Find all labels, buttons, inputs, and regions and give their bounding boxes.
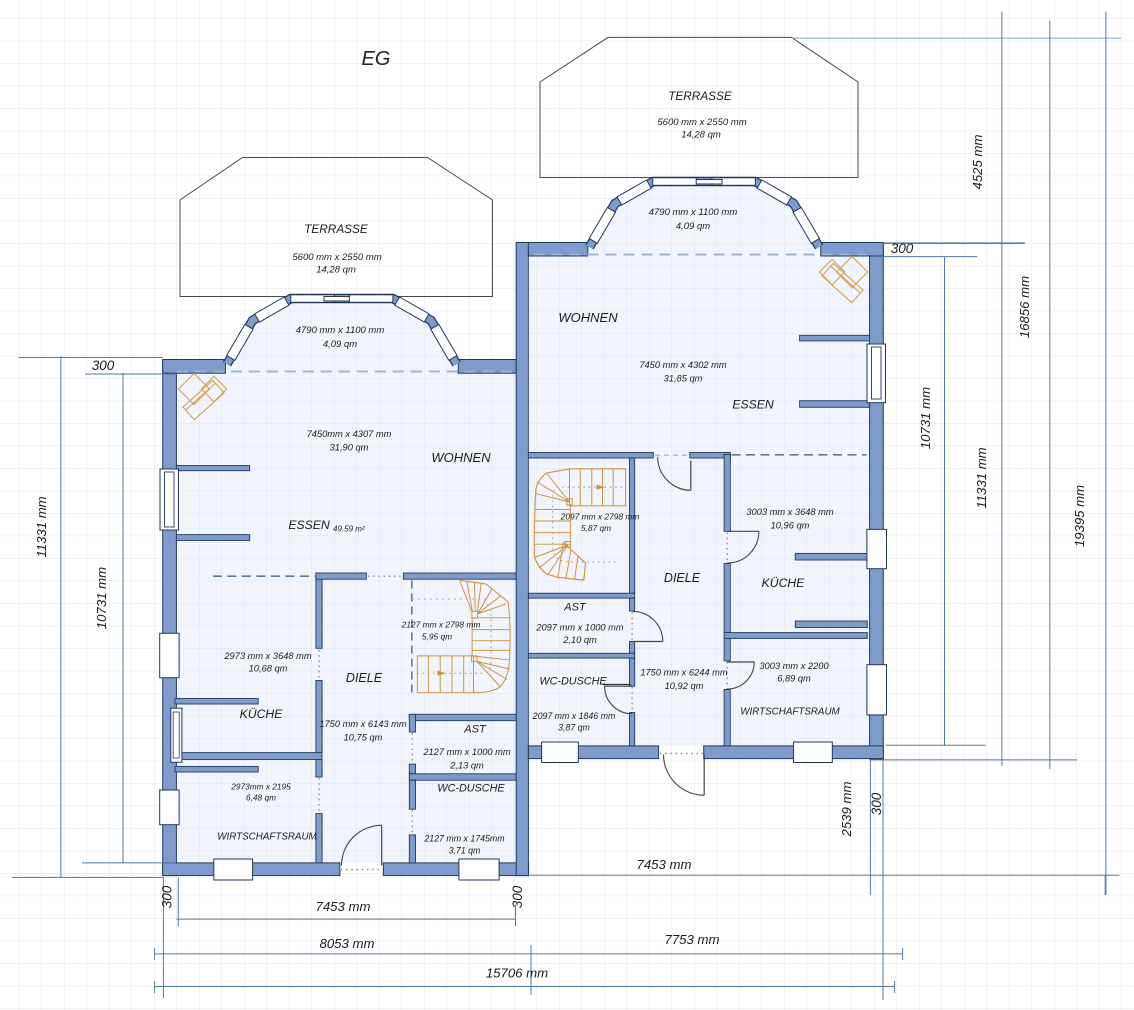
svg-text:10,68 qm: 10,68 qm (249, 664, 288, 674)
svg-text:3003 mm x 3648 mm: 3003 mm x 3648 mm (746, 507, 834, 517)
svg-text:2127 mm x 1745mm: 2127 mm x 1745mm (423, 834, 504, 844)
svg-text:14,28 qm: 14,28 qm (316, 265, 356, 276)
svg-text:11331 mm: 11331 mm (974, 447, 989, 508)
svg-text:2539 mm: 2539 mm (839, 782, 854, 838)
svg-text:7450 mm x 4302 mm: 7450 mm x 4302 mm (639, 360, 727, 370)
svg-text:WC-DUSCHE: WC-DUSCHE (539, 676, 607, 688)
svg-text:10731 mm: 10731 mm (94, 567, 109, 629)
svg-text:10,96 qm: 10,96 qm (771, 521, 810, 531)
svg-text:2,10 qm: 2,10 qm (562, 635, 597, 645)
svg-text:4,09 qm: 4,09 qm (676, 221, 710, 232)
svg-text:6,48 qm: 6,48 qm (246, 793, 276, 803)
svg-text:300: 300 (92, 358, 115, 373)
svg-text:5600 mm x 2550 mm: 5600 mm x 2550 mm (292, 252, 381, 263)
svg-text:2973 mm x 3648 mm: 2973 mm x 3648 mm (223, 651, 312, 661)
svg-text:31,85 qm: 31,85 qm (664, 374, 703, 384)
svg-text:15706 mm: 15706 mm (486, 966, 548, 981)
svg-text:WOHNEN: WOHNEN (431, 450, 491, 465)
svg-text:WOHNEN: WOHNEN (558, 310, 618, 325)
svg-text:31,90 qm: 31,90 qm (330, 443, 369, 453)
svg-text:4525 mm: 4525 mm (970, 135, 985, 190)
svg-text:11331 mm: 11331 mm (34, 496, 49, 557)
svg-text:8053 mm: 8053 mm (320, 936, 375, 951)
svg-text:AST: AST (563, 602, 587, 614)
svg-text:EG: EG (362, 48, 391, 70)
svg-text:5,95 qm: 5,95 qm (422, 632, 452, 642)
svg-text:ESSEN: ESSEN (732, 398, 774, 412)
svg-text:3,87 qm: 3,87 qm (558, 723, 590, 733)
svg-text:49.59 m²: 49.59 m² (333, 525, 365, 534)
svg-text:2097 mm x 2798 mm: 2097 mm x 2798 mm (560, 512, 640, 522)
svg-text:300: 300 (891, 241, 914, 256)
svg-text:4790 mm x 1100 mm: 4790 mm x 1100 mm (296, 325, 385, 336)
svg-text:7453 mm: 7453 mm (316, 899, 371, 914)
svg-text:KÜCHE: KÜCHE (762, 576, 806, 590)
svg-text:7450mm x 4307 mm: 7450mm x 4307 mm (307, 429, 392, 439)
svg-text:2097 mm x 1000 mm: 2097 mm x 1000 mm (535, 623, 624, 633)
svg-text:14,28 qm: 14,28 qm (681, 130, 721, 141)
svg-text:6,89 qm: 6,89 qm (777, 674, 811, 684)
svg-text:WIRTSCHAFTSRAUM: WIRTSCHAFTSRAUM (217, 832, 317, 843)
svg-text:KÜCHE: KÜCHE (240, 707, 284, 721)
svg-text:300: 300 (510, 885, 525, 908)
svg-text:1750 mm x 6244 mm: 1750 mm x 6244 mm (640, 668, 728, 678)
svg-text:3,71 qm: 3,71 qm (449, 846, 481, 856)
svg-text:TERRASSE: TERRASSE (668, 89, 732, 103)
svg-text:19395 mm: 19395 mm (1072, 485, 1087, 547)
svg-text:10,75 qm: 10,75 qm (344, 733, 383, 743)
svg-text:WC-DUSCHE: WC-DUSCHE (437, 783, 505, 795)
svg-text:2127 mm x 1000 mm: 2127 mm x 1000 mm (422, 747, 511, 757)
svg-text:10731 mm: 10731 mm (918, 387, 933, 449)
svg-text:5,87 qm: 5,87 qm (581, 523, 611, 533)
svg-text:AST: AST (463, 724, 487, 736)
svg-text:5600 mm x 2550 mm: 5600 mm x 2550 mm (657, 117, 746, 128)
svg-text:300: 300 (869, 792, 884, 815)
svg-text:2127 mm x 2798 mm: 2127 mm x 2798 mm (401, 620, 481, 630)
svg-text:DIELE: DIELE (346, 671, 383, 685)
svg-text:7753 mm: 7753 mm (665, 932, 720, 947)
svg-text:2973mm x 2195: 2973mm x 2195 (230, 782, 291, 792)
svg-text:4790 mm x 1100 mm: 4790 mm x 1100 mm (649, 207, 738, 218)
svg-text:1750 mm x 6143 mm: 1750 mm x 6143 mm (319, 719, 407, 729)
svg-text:10,92 qm: 10,92 qm (665, 681, 704, 691)
svg-text:16856 mm: 16856 mm (1017, 276, 1032, 338)
svg-text:300: 300 (160, 885, 175, 908)
svg-text:2097 mm x 1846 mm: 2097 mm x 1846 mm (532, 711, 616, 721)
svg-text:TERRASSE: TERRASSE (304, 222, 368, 236)
svg-text:4,09 qm: 4,09 qm (323, 339, 357, 350)
svg-text:7453 mm: 7453 mm (637, 857, 692, 872)
svg-text:ESSEN: ESSEN (288, 518, 330, 532)
svg-text:WIRTSCHAFTSRAUM: WIRTSCHAFTSRAUM (740, 707, 840, 718)
svg-text:3003 mm x 2200: 3003 mm x 2200 (759, 661, 829, 671)
svg-text:DIELE: DIELE (664, 571, 701, 585)
svg-text:2,13 qm: 2,13 qm (449, 761, 484, 771)
